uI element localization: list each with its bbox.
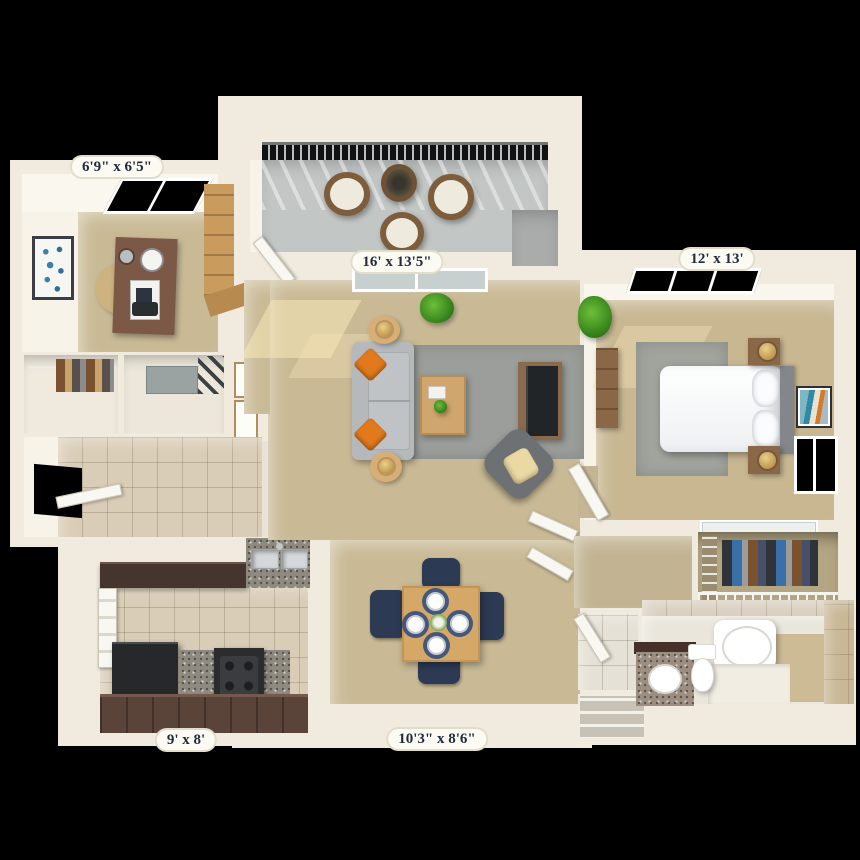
kitchen-lower-cabinets bbox=[100, 694, 308, 733]
dimension-label-balcony: 16' x 13'5" bbox=[352, 252, 441, 272]
kitchen-sink-left bbox=[251, 549, 279, 569]
nightstand-bottom-lamp bbox=[759, 452, 776, 469]
walkin-hanging-clothes bbox=[722, 540, 818, 586]
dining-plate-left bbox=[406, 615, 425, 634]
bathroom-wall-tile-top bbox=[642, 600, 824, 616]
balcony-storage-floor bbox=[512, 210, 558, 266]
kitchen-counter-right bbox=[262, 650, 290, 698]
balcony-chair-right bbox=[428, 174, 474, 220]
bedroom-top-windows bbox=[626, 268, 762, 294]
kitchen-counter-left bbox=[180, 650, 214, 698]
dimension-label-living-dining: 10'3" x 8'6" bbox=[388, 729, 486, 749]
den-wall-art bbox=[32, 236, 74, 300]
bedroom-right-window-mullion bbox=[813, 439, 816, 491]
bed-headboard bbox=[780, 366, 794, 454]
kitchen-stove-top bbox=[220, 656, 258, 696]
bathroom-wall-tile-right bbox=[824, 600, 854, 704]
nightstand-top-lamp bbox=[759, 343, 776, 360]
bed-pillow-top bbox=[752, 370, 779, 407]
kitchen-sink-right bbox=[281, 549, 308, 569]
bedroom-dresser bbox=[596, 348, 618, 428]
coffee-table-book bbox=[428, 386, 446, 399]
tv-screen bbox=[526, 366, 558, 436]
foyer-tile-floor bbox=[58, 437, 262, 537]
bedroom-top-window-mullion-1 bbox=[668, 271, 677, 291]
utility-shelf-unit bbox=[146, 366, 198, 394]
utility-pipes bbox=[198, 356, 224, 394]
floor-plan: 6'9" x 6'5" 16' x 13'5" 12' x 13' 9' x 8… bbox=[0, 0, 860, 860]
dining-plate-top bbox=[426, 592, 445, 611]
toilet-bowl bbox=[691, 658, 714, 692]
bedroom-top-window-mullion-2 bbox=[708, 271, 717, 291]
bedroom-right-window bbox=[794, 436, 838, 494]
den-bookcase bbox=[204, 184, 234, 296]
den-desk-clock bbox=[140, 248, 164, 272]
tub-surround bbox=[708, 664, 790, 704]
living-sofa-cushion-split bbox=[368, 400, 410, 402]
closet-hanging-clothes bbox=[56, 359, 114, 392]
sliding-door-mullion bbox=[415, 271, 418, 289]
bedroom-wall-art bbox=[796, 386, 832, 428]
dimension-label-kitchen: 9' x 8' bbox=[157, 730, 215, 750]
bathtub-basin bbox=[722, 626, 772, 668]
living-plant bbox=[420, 293, 454, 323]
den-window-mullion bbox=[147, 181, 166, 211]
den-window bbox=[102, 178, 213, 214]
dining-plate-right bbox=[450, 614, 469, 633]
den-desk-lamp bbox=[120, 250, 133, 263]
balcony-table bbox=[381, 164, 417, 202]
dining-chair-left bbox=[370, 590, 406, 638]
bedroom-plant bbox=[578, 296, 612, 338]
coffee-table-plant bbox=[434, 400, 447, 413]
dining-centerpiece bbox=[430, 614, 447, 631]
front-door-opening bbox=[34, 464, 82, 518]
kitchen-faucet bbox=[276, 543, 283, 550]
vanity-sink bbox=[648, 664, 682, 694]
dining-plate-bottom bbox=[427, 636, 446, 655]
kitchen-upper-counter bbox=[100, 562, 248, 588]
side-table-top-lamp bbox=[377, 322, 392, 337]
den-desk-items bbox=[132, 302, 158, 316]
balcony-chair-bottom bbox=[380, 212, 424, 254]
balcony-chair-left bbox=[324, 172, 370, 216]
bed-pillow-bottom bbox=[752, 410, 779, 447]
dimension-label-den: 6'9" x 6'5" bbox=[72, 157, 162, 177]
hallway-carpet bbox=[574, 536, 692, 608]
dimension-label-bedroom: 12' x 13' bbox=[680, 249, 753, 269]
side-table-bottom-lamp bbox=[379, 459, 394, 474]
